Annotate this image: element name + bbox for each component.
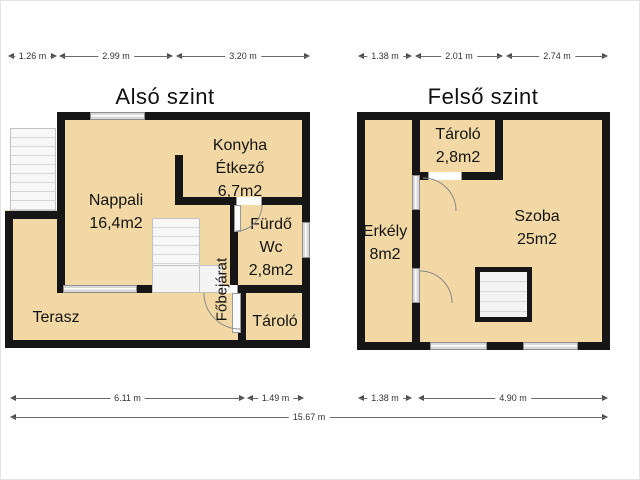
wall — [5, 211, 57, 219]
room-area: 8m2 — [345, 243, 425, 266]
door-leaf — [232, 293, 241, 333]
dim-total-width: 15.67 m — [10, 413, 608, 422]
dim-label: 1.26 m — [15, 51, 51, 62]
dim-lower-top-3: 3.20 m — [176, 52, 310, 61]
upper-staircase — [475, 267, 532, 322]
room-label-tarolo-lower: Tároló — [243, 310, 307, 333]
room-label-nappali: Nappali 16,4m2 — [56, 189, 176, 235]
dim-label: 1.49 m — [258, 393, 294, 404]
room-name: Wc — [238, 236, 304, 259]
room-area: 16,4m2 — [56, 212, 176, 235]
room-area: 2,8m2 — [405, 146, 511, 169]
window — [90, 112, 145, 120]
room-area: 25m2 — [487, 228, 587, 251]
dim-label: 1.38 m — [367, 51, 403, 62]
room-name: Erkély — [345, 220, 425, 243]
room-name: Tároló — [243, 310, 307, 333]
dim-lower-bottom-1: 6.11 m — [10, 394, 245, 403]
dim-upper-top-2: 2.01 m — [415, 52, 503, 61]
dim-label: 2.74 m — [539, 51, 575, 62]
upper-floor-title: Felső szint — [378, 84, 588, 110]
room-label-furdo: Fürdő Wc 2,8m2 — [238, 213, 304, 282]
room-label-konyha: Konyha Étkező 6,7m2 — [183, 134, 297, 203]
dim-upper-top-3: 2.74 m — [506, 52, 608, 61]
room-area: 6,7m2 — [183, 180, 297, 203]
room-name: Terasz — [16, 306, 96, 329]
room-name: Tároló — [405, 123, 511, 146]
dim-upper-top-1: 1.38 m — [358, 52, 412, 61]
window — [523, 342, 578, 350]
dim-label: 15.67 m — [289, 412, 330, 423]
dim-label: 2.99 m — [98, 51, 134, 62]
dim-label: 2.01 m — [441, 51, 477, 62]
dim-label: 1.38 m — [367, 393, 403, 404]
dim-label: 3.20 m — [225, 51, 261, 62]
room-label-fobejarat: Főbejárat — [214, 230, 231, 350]
dim-upper-bottom-1: 1.38 m — [358, 394, 412, 403]
balcony-door-glazing — [412, 268, 420, 303]
room-name: Konyha — [183, 134, 297, 157]
wall — [357, 112, 610, 120]
room-label-tarolo-upper: Tároló 2,8m2 — [405, 123, 511, 169]
room-name: Szoba — [487, 205, 587, 228]
dim-lower-top-2: 2.99 m — [59, 52, 173, 61]
room-label-szoba: Szoba 25m2 — [487, 205, 587, 251]
wall — [5, 340, 310, 348]
room-area: 2,8m2 — [238, 259, 304, 282]
door-opening-storage — [428, 172, 462, 180]
floorplan-canvas: 1.26 m 2.99 m 3.20 m Alsó szint Nappali … — [0, 0, 640, 480]
balcony-door-glazing — [412, 175, 420, 210]
dim-label: 6.11 m — [110, 393, 145, 404]
staircase-landing — [152, 265, 200, 293]
wall — [5, 211, 13, 348]
dim-label: 4.90 m — [495, 393, 531, 404]
window — [430, 342, 487, 350]
room-name: Étkező — [183, 157, 297, 180]
dim-lower-bottom-2: 1.49 m — [247, 394, 304, 403]
exterior-staircase — [10, 128, 56, 211]
lower-floor-title: Alsó szint — [60, 84, 270, 110]
wall — [602, 112, 610, 350]
dim-lower-top-1: 1.26 m — [8, 52, 57, 61]
window — [63, 285, 137, 293]
dim-upper-bottom-2: 4.90 m — [418, 394, 608, 403]
room-name: Nappali — [56, 189, 176, 212]
room-name: Fürdő — [238, 213, 304, 236]
room-label-erkely: Erkély 8m2 — [345, 220, 425, 266]
room-label-terasz: Terasz — [16, 306, 96, 329]
